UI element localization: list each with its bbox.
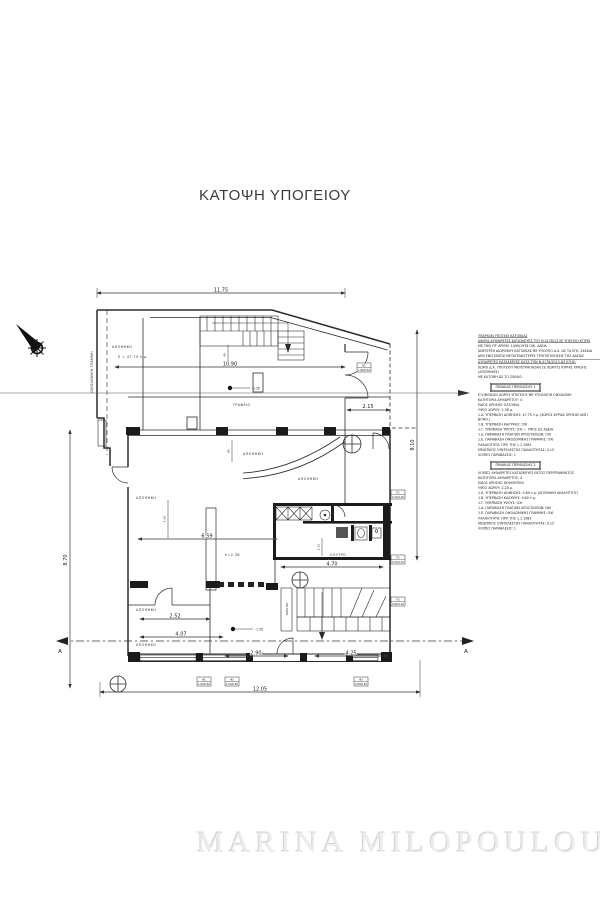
table1-line: 1.Γ. ΥΠΕΡΒΑΣΗ ΥΨΟΥΣ: ΟΧΙ — ΥΨΟΣ ΩΣ ΑΔΕΙΑ	[478, 428, 600, 433]
svg-text:1.00/1.20: 1.00/1.20	[392, 495, 404, 499]
dim-left-v: 8.70	[63, 554, 69, 565]
tag: Φ21.00/0.60	[225, 677, 239, 686]
dim-b2: 4.07	[175, 632, 186, 638]
table2-line: ΜΕΙΩΤΙΚΟΣ ΣΥΝΤΕΛΕΣΤΗΣ ΠΑΛΑΙΟΤΗΤΑΣ: 0.15	[478, 521, 600, 526]
table2-title: ΠΙΝΑΚΑΣ ΠΕΡΑΙΩΣΗΣ 2	[491, 462, 540, 469]
tag: Π11.00/1.20	[391, 490, 405, 499]
dim-v1: 40	[223, 353, 227, 357]
table2-line: ΕΙΔΟΣ ΧΡΗΣΗΣ: ΒΟΗΘΗΤΙΚΗ	[478, 481, 600, 486]
section-label-left: A	[58, 649, 62, 655]
schedule-tags: Θ11.80/2.20 Π11.00/1.20 Π21.00/1.20 Π30.…	[197, 363, 405, 686]
table1-line: 1.Δ. ΠΑΡΑΒΙΑΣΗ ΠΛΑΓΙΩΝ ΑΠΟΣΤΑΣΕΩΝ: ΟΧΙ	[478, 433, 600, 438]
storeroom-door	[155, 588, 172, 605]
svg-text:0.80/0.60: 0.80/0.60	[355, 682, 367, 686]
room-label-storage-left: ΑΠΟΘΗΚΗ	[136, 496, 156, 500]
tag: Θ11.80/2.20	[357, 363, 371, 372]
section-line: A A	[56, 637, 474, 655]
table1-line: ΠΑΛΑΙΟΤΗΤΑ: ΠΡΟ ΤΗΣ 1.1.1983	[478, 443, 600, 448]
svg-text:Θ1: Θ1	[362, 364, 366, 368]
table1-line: ΕΞΟΜΟΙΩΣΗ ΧΩΡΟΥ ΥΠΟΓΕΙΟΥ ΜΕ ΥΠΟΛΟΙΠΗ ΟΙΚ…	[478, 393, 600, 398]
table1-title: ΠΙΝΑΚΑΣ ΠΕΡΑΙΩΣΗΣ 1	[491, 384, 540, 391]
curved-ramp	[243, 437, 345, 479]
room-label-office: ΓΡΑΦΕΙΟ	[233, 403, 251, 407]
dim-v4: 2.15	[317, 544, 321, 551]
svg-text:1.00/0.60: 1.00/0.60	[226, 682, 238, 686]
table1-line: ΥΨΟΣ ΧΩΡΟΥ: 2.38 μ.	[478, 408, 600, 413]
notes-line: ΜΕ ΤΗΝ ΥΠ' ΑΡΙΘΜ. 1499/1978 ΟΙΚ. ΑΔΕΙΑ	[478, 344, 600, 349]
room-label-storage-top: ΑΠΟΘΗΚΗ	[112, 345, 132, 349]
notes-line: ΑΝΕΓΕΡΣΗ ΔΙΩΡΟΦΟΥ ΚΑΤΟΙΚΙΑΣ ΜΕ ΥΠΟΓΕΙΟ Δ…	[478, 349, 600, 354]
svg-text:1.00/0.60: 1.00/0.60	[198, 682, 210, 686]
left-wall-door	[112, 467, 128, 483]
room-label-storage-right: ΑΠΟΘΗΚΗ	[298, 477, 318, 481]
understairs-door	[277, 638, 293, 654]
room-label-bath: ΛΟΥΤΡΟ	[330, 553, 346, 557]
dim-entry: 2.15	[362, 404, 373, 410]
closet-label: ΛΕΒΗΤΑΣ	[285, 602, 289, 615]
tag: Π30.80/1.20	[391, 597, 405, 606]
notes-heading-2: ΑΦΟΡΑ ΑΥΘΑΙΡΕΤΕΣ ΚΑΤΑΣΚΕΥΕΣ ΤΟΥ Ν.4178/1…	[478, 339, 600, 344]
table2-line: 1.Α. ΥΠΕΡΒΑΣΗ ΔΟΜΗΣΗΣ: 9.80 τ.μ. (ΑΠΟΘΗΚ…	[478, 491, 600, 496]
shaft-circle-1	[343, 435, 361, 453]
dim-overall: 12.05	[253, 687, 267, 693]
bath-door	[333, 505, 345, 517]
table2-line: ΠΑΛΑΙΟΤΗΤΑ: ΠΡΟ ΤΗΣ 1.1.1983	[478, 516, 600, 521]
svg-text:Φ1: Φ1	[202, 678, 206, 682]
svg-text:1.00/1.20: 1.00/1.20	[392, 560, 404, 564]
dim-b4: 4.25	[345, 651, 356, 657]
svg-text:0.80/1.20: 0.80/1.20	[392, 602, 404, 606]
svg-text:Π3: Π3	[396, 598, 400, 602]
sink-icon	[372, 528, 381, 538]
dim-inner: 10.90	[223, 362, 237, 368]
room-label-area: E = 47.75 τ.μ.	[118, 355, 148, 359]
table1-line: 1.Ε. ΠΑΡΑΒΙΑΣΗ ΟΙΚΟΔΟΜΙΚΗΣ ΓΡΑΜΜΗΣ: ΟΧΙ	[478, 438, 600, 443]
table1-line: ΕΙΔΟΣ ΧΡΗΣΗΣ: ΚΑΤΟΙΚΙΑ	[478, 403, 600, 408]
notes-panel: ΥΠΑΡΧΟΝ ΥΠΟΓΕΙΟ ΚΑΤΟΙΚΙΑΣ ΑΦΟΡΑ ΑΥΘΑΙΡΕΤ…	[478, 334, 600, 729]
svg-text:Π1: Π1	[396, 491, 400, 495]
room-label-storage-mid: ΑΠΟΘΗΚΗ	[243, 452, 263, 456]
property-line-label: ΟΙΚΟΔΟΜΙΚΗ ΓΡΑΜΜΗ	[90, 351, 94, 393]
table2-line: 1.Ε. ΠΑΡΑΒΙΑΣΗ ΟΙΚΟΔΟΜΙΚΗΣ ΓΡΑΜΜΗΣ: ΟΧΙ	[478, 511, 600, 516]
svg-text:Φ2: Φ2	[230, 678, 234, 682]
shaft-circle-2	[292, 572, 308, 588]
table1-line: 1.Α. ΥΠΕΡΒΑΣΗ ΔΟΜΗΣΗΣ: 47.75 τ.μ. (ΧΩΡΟΣ…	[478, 413, 600, 422]
level-markers: -1.35 -1.35	[228, 386, 263, 632]
svg-text:Φ3: Φ3	[359, 678, 363, 682]
closet-x-panels	[276, 507, 312, 520]
washer-icon	[336, 527, 348, 538]
notes-heading-1: ΥΠΑΡΧΟΝ ΥΠΟΓΕΙΟ ΚΑΤΟΙΚΙΑΣ	[478, 334, 600, 339]
table1-line: ΚΑΤΗΓΟΡΙΑ ΑΥΘΑΙΡΕΤΟΥ: 4	[478, 398, 600, 403]
tag: Φ11.00/0.60	[197, 677, 211, 686]
level-lower: -1.35	[255, 628, 263, 632]
section-label-right: A	[464, 649, 468, 655]
room-label-storage-b2: ΑΠΟΘΗΚΗ	[136, 643, 156, 647]
dim-mid: 6.59	[201, 534, 212, 540]
tag: Π21.00/1.20	[391, 555, 405, 564]
room-label-height: h=2.38	[225, 553, 240, 557]
dim-bath: 4.70	[326, 562, 337, 568]
table2-line: ΚΑΤΗΓΟΡΙΑ ΑΥΘΑΙΡΕΤΟΥ: 4	[478, 476, 600, 481]
table2-line: 1.Β. ΥΠΕΡΒΑΣΗ ΚΑΛΥΨΗΣ: 9.80 τ.μ.	[478, 496, 600, 501]
dim-v3: 2.50	[163, 516, 167, 523]
watermark: MARINA MILOPOULOU	[197, 826, 600, 860]
table1-line: ΜΕΙΩΤΙΚΟΣ ΣΥΝΤΕΛΕΣΤΗΣ ΠΑΛΑΙΟΤΗΤΑΣ: 0.15	[478, 448, 600, 453]
drawing-sheet: ΚΑΤΟΨΗ ΥΠΟΓΕΙΟΥ ΟΙΚΟΔΟΜΙΚΗ ΓΡΑΜΜΗ	[0, 0, 600, 900]
table2-line: 1.Γ. ΥΠΕΡΒΑΣΗ ΥΨΟΥΣ: ΟΧΙ	[478, 501, 600, 506]
svg-text:1.80/2.20: 1.80/2.20	[358, 368, 370, 372]
inner-walls	[128, 318, 390, 654]
shaft-circle-3	[110, 676, 126, 692]
table1-line: ΛΟΙΠΕΣ ΠΑΡΑΒΑΣΕΙΣ: 1	[478, 453, 600, 458]
table2-line: ΥΨΟΣ ΧΩΡΟΥ: 2.20 μ.	[478, 486, 600, 491]
dim-v2: 85	[227, 449, 231, 453]
table1-line: 1.Β. ΥΠΕΡΒΑΣΗ ΚΑΛΥΨΗΣ: ΟΧΙ	[478, 423, 600, 428]
dim-top: 11.75	[214, 288, 228, 294]
svg-text:Π2: Π2	[396, 556, 400, 560]
room-labels: ΑΠΟΘΗΚΗ E = 47.75 τ.μ. ΓΡΑΦΕΙΟ ΑΠΟΘΗΚΗ Α…	[112, 345, 346, 647]
level-upper: -1.35	[252, 387, 260, 391]
dimension-lines	[70, 288, 420, 697]
tag: Φ30.80/0.60	[354, 677, 368, 686]
table2-line: ΛΟΙΠΕΣ ΠΑΡΑΒΑΣΕΙΣ: 1	[478, 526, 600, 531]
notes-line: ΧΩΡΟΙ Δ.Χ. ΥΠΟΓΕΙΟΥ ΜΕΤΕΤΡΑΠΗΣΑΝ ΣΕ ΧΩΡΟ…	[478, 365, 600, 374]
dim-right-v: 8.10	[410, 439, 416, 450]
north-arrow-icon	[16, 324, 46, 357]
leader-line	[0, 390, 470, 396]
room-label-storage-b1: ΑΠΟΘΗΚΗ	[136, 608, 156, 612]
notes-divider-line: ΑΥΘΑΙΡΕΤΕΣ ΚΑΤΑΣΚΕΥΕΣ ΚΑΤΑ ΤΟΝ Ν.4178/20…	[478, 359, 600, 365]
dim-b1: 2.52	[169, 614, 180, 620]
wc-icon	[355, 527, 367, 540]
notes-line: ΔΕΝ ΥΦΙΣΤΑΝΤΑΙ ΜΕΤΑΓΕΝΕΣΤΕΡΕΣ ΤΡΟΠΟΠΟΙΗΣ…	[478, 354, 600, 359]
notes-line: ΜΕ ΚΑΤΟΨΗ ΩΣ ΤΟ ΣΧΕΔΙΟ	[478, 375, 600, 380]
table2-line: 1.Δ. ΠΑΡΑΒΙΑΣΗ ΠΛΑΓΙΩΝ ΑΠΟΣΤΑΣΕΩΝ: ΝΑΙ	[478, 506, 600, 511]
table2-line: ΛΟΙΠΕΣ ΑΥΘΑΙΡΕΤΕΣ ΚΑΤΑΣΚΕΥΕΣ ΕΚΤΟΣ ΠΕΡΙΓ…	[478, 471, 600, 476]
bottom-staircase: ΛΕΒΗΤΑΣ	[281, 588, 390, 640]
dim-b3: 2.90	[250, 651, 261, 657]
